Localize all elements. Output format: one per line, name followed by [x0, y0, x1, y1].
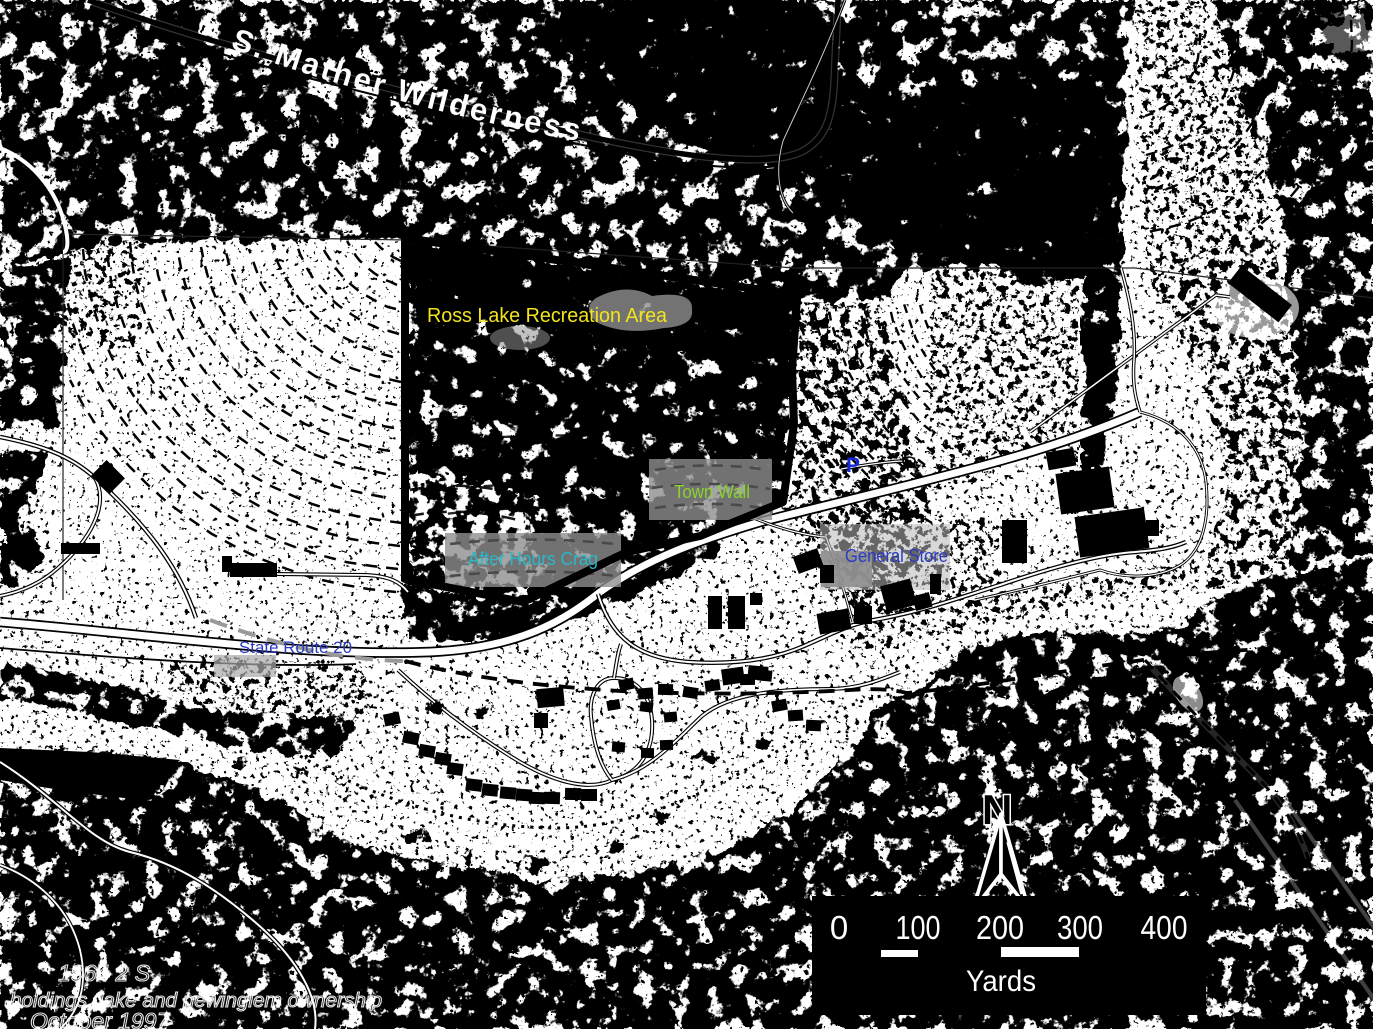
svg-text:1964 2 S: 1964 2 S [58, 960, 151, 986]
svg-text:100: 100 [896, 909, 941, 946]
svg-text:After Hours Crag: After Hours Crag [468, 549, 598, 569]
svg-text:State Route 20: State Route 20 [239, 638, 352, 657]
svg-text:General Store: General Store [845, 546, 948, 566]
svg-text:Yards: Yards [966, 965, 1036, 998]
svg-text:P: P [846, 454, 860, 477]
svg-text:200: 200 [976, 909, 1024, 946]
svg-text:0: 0 [830, 909, 848, 946]
svg-text:300: 300 [1057, 909, 1103, 946]
svg-text:400: 400 [1141, 909, 1188, 946]
svg-text:Town Wall: Town Wall [674, 482, 750, 502]
svg-text:Ross Lake Recreation Area: Ross Lake Recreation Area [427, 305, 668, 327]
svg-text:October 1997: October 1997 [30, 1008, 171, 1029]
